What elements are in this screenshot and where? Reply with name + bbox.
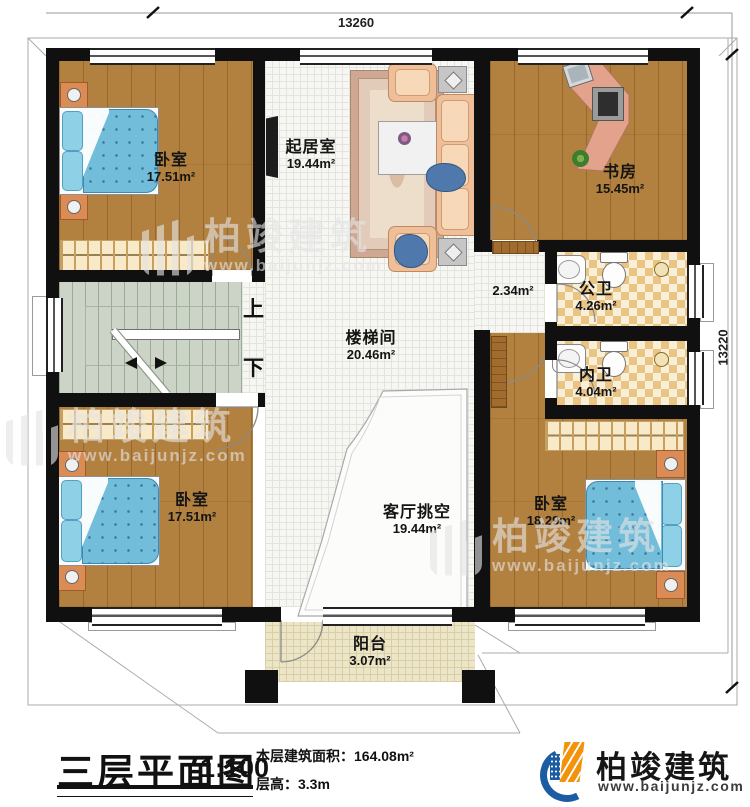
bed-pillow	[62, 151, 83, 191]
room-name: 内卫	[546, 367, 646, 385]
floor-area-value: 164.08m²	[354, 748, 414, 764]
bed-fold	[83, 109, 109, 191]
label-study: 书房 15.45m²	[570, 164, 670, 197]
wall-bedroomtl-bottom	[252, 270, 265, 282]
bed-pillow	[661, 483, 682, 525]
window	[687, 265, 704, 318]
armchair-cushion	[395, 69, 430, 96]
room-name: 卧室	[121, 152, 221, 170]
label-bedroom-tl: 卧室 17.51m²	[121, 152, 221, 185]
label-corridor: 2.34m²	[478, 284, 548, 299]
bed-pillow	[61, 480, 82, 520]
wall-living-study	[474, 48, 490, 252]
bed-pillow	[661, 525, 682, 567]
room-name: 起居室	[261, 139, 361, 157]
bedroom-door-leaf	[491, 336, 507, 408]
sofa-cushion	[441, 188, 469, 230]
title-underline	[57, 785, 253, 797]
wall-stairs-bottom	[258, 393, 265, 407]
room-area: 18.29m²	[501, 514, 601, 529]
wall-bedroomtl-bottom	[46, 270, 212, 282]
label-balcony: 阳台 3.07m²	[320, 636, 420, 669]
armchair	[388, 63, 437, 102]
wall-right	[687, 48, 700, 622]
nightstand	[656, 571, 685, 599]
floor-plan-page: 13260 13220	[0, 0, 750, 807]
wall-bedroombr-left	[474, 330, 490, 607]
wall-balcony-back	[265, 607, 281, 622]
label-public-bath: 公卫 4.26m²	[546, 281, 646, 314]
floor-height-value: 3.3m	[298, 776, 330, 792]
room-area: 20.46m²	[321, 348, 421, 363]
room-area: 3.07m²	[320, 654, 420, 669]
dimension-top: 13260	[338, 15, 374, 30]
nightstand	[60, 82, 88, 108]
sofa-cushion	[441, 100, 469, 142]
shower-head	[654, 352, 669, 367]
window	[518, 48, 648, 65]
room-area: 15.45m²	[570, 182, 670, 197]
nightstand	[656, 450, 685, 478]
side-table	[438, 66, 467, 93]
table-flowers	[398, 132, 411, 145]
wall-balcony-back	[452, 607, 474, 622]
room-area: 4.26m²	[546, 299, 646, 314]
company-logo: 柏竣建筑 www.baijunjz.com	[538, 740, 748, 800]
wall-study-bottom	[474, 240, 492, 252]
sink	[552, 255, 586, 284]
closet-bedroom-bl	[60, 409, 209, 440]
room-name: 卧室	[501, 496, 601, 514]
nightstand	[57, 563, 86, 591]
floor-height-caption: 层高：	[256, 776, 298, 792]
wall-bath-left	[545, 252, 557, 284]
wardrobe-bedroom-br	[545, 421, 684, 451]
bed-pillow	[62, 111, 83, 151]
room-name: 客厅挑空	[362, 504, 472, 522]
balcony-column	[245, 670, 278, 703]
wall-stairs-bottom	[46, 393, 216, 407]
bed-fold	[635, 481, 661, 567]
wall-study-bottom	[537, 240, 700, 252]
label-stairwell: 楼梯间 20.46m²	[321, 330, 421, 363]
person-on-armchair	[394, 234, 428, 268]
window	[687, 352, 704, 405]
floor-area-label: 本层建筑面积：164.08m²	[256, 746, 414, 766]
room-area: 4.04m²	[546, 385, 646, 400]
room-name: 书房	[570, 164, 670, 182]
label-living: 起居室 19.44m²	[261, 139, 361, 172]
balcony-column	[462, 670, 495, 703]
floor-height-label: 层高：3.3m	[256, 774, 330, 794]
person-on-sofa	[426, 163, 466, 192]
shower-head	[654, 262, 669, 277]
label-inner-bath: 内卫 4.04m²	[546, 367, 646, 400]
window	[46, 298, 63, 372]
room-area: 19.44m²	[362, 522, 472, 537]
bed-pillow	[61, 520, 82, 562]
stairs-down-label: 下	[243, 352, 264, 382]
room-name: 阳台	[320, 636, 420, 654]
room-name: 公卫	[546, 281, 646, 299]
bed-fold	[82, 478, 108, 562]
study-door-leaf	[492, 241, 539, 254]
dimension-right: 13220	[716, 329, 731, 365]
room-name: 卧室	[142, 492, 242, 510]
wall-innerbath-bottom	[545, 405, 687, 419]
room-area: 19.44m²	[261, 157, 361, 172]
label-bedroom-br: 卧室 18.29m²	[501, 496, 601, 529]
logo-url: www.baijunjz.com	[598, 778, 744, 794]
room-area: 2.34m²	[478, 284, 548, 299]
wall-between-baths	[545, 326, 687, 341]
window	[515, 607, 645, 626]
floor-area-caption: 本层建筑面积：	[256, 748, 354, 764]
nightstand	[57, 451, 86, 479]
floor-study	[490, 61, 687, 240]
computer-monitor	[592, 87, 624, 121]
label-void: 客厅挑空 19.44m²	[362, 504, 472, 537]
window-balcony	[323, 607, 452, 626]
closet-bedroom-tl	[60, 240, 209, 271]
stairs-up-label: 上	[243, 293, 264, 323]
nightstand	[60, 194, 88, 220]
room-name: 楼梯间	[321, 330, 421, 348]
window	[92, 607, 222, 626]
stairs-handrail	[112, 329, 240, 340]
window	[90, 48, 215, 65]
room-area: 17.51m²	[142, 510, 242, 525]
logo-tower-icon	[550, 754, 560, 780]
window	[300, 48, 432, 65]
label-bedroom-bl: 卧室 17.51m²	[142, 492, 242, 525]
side-table	[438, 238, 467, 266]
room-area: 17.51m²	[121, 170, 221, 185]
